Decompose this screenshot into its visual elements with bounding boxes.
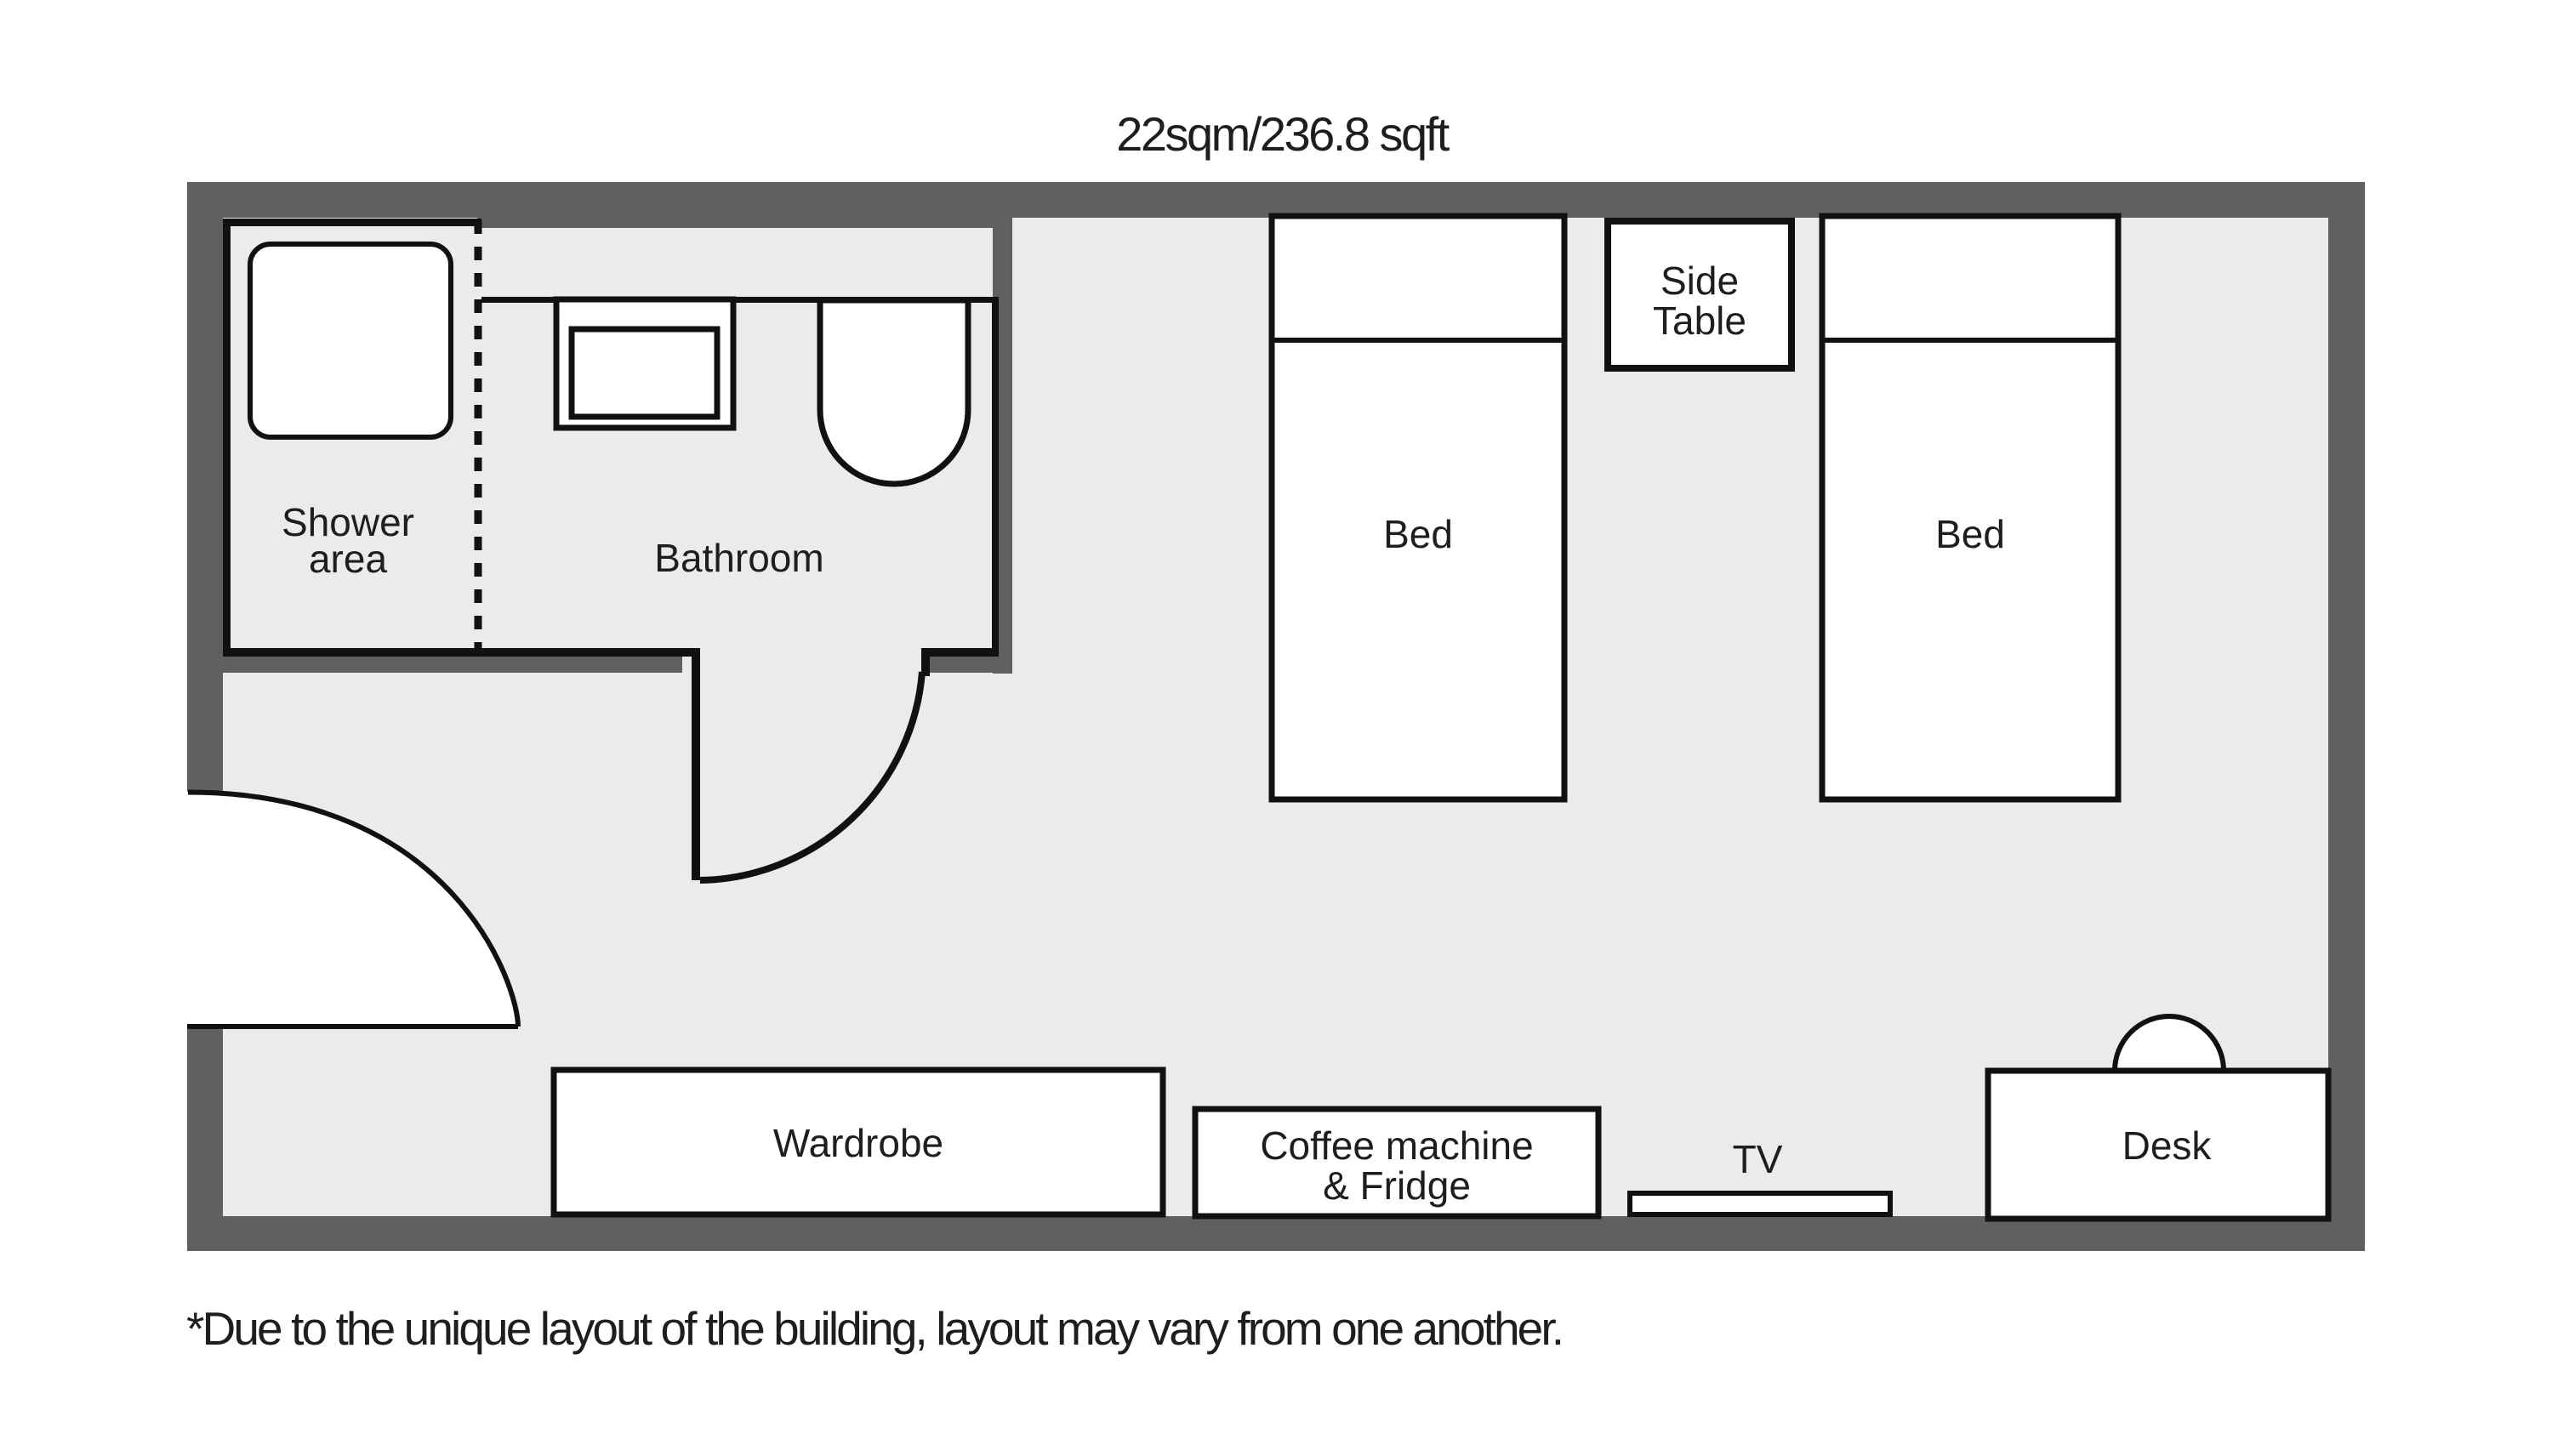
svg-text:Bed: Bed bbox=[1935, 512, 2005, 556]
svg-text:Bed: Bed bbox=[1383, 512, 1453, 556]
svg-text:TV: TV bbox=[1733, 1137, 1783, 1181]
svg-text:Coffee machine: Coffee machine bbox=[1260, 1123, 1533, 1168]
svg-text:& Fridge: & Fridge bbox=[1323, 1163, 1471, 1208]
svg-text:Desk: Desk bbox=[2122, 1123, 2213, 1168]
svg-text:Side: Side bbox=[1661, 259, 1739, 303]
svg-text:Wardrobe: Wardrobe bbox=[773, 1121, 943, 1165]
svg-text:area: area bbox=[309, 537, 387, 581]
svg-text:Table: Table bbox=[1653, 299, 1746, 343]
svg-text:22sqm/236.8 sqft: 22sqm/236.8 sqft bbox=[1116, 107, 1450, 161]
svg-text:*Due to the unique layout of t: *Due to the unique layout of the buildin… bbox=[186, 1302, 1562, 1355]
svg-text:Bathroom: Bathroom bbox=[654, 536, 823, 580]
